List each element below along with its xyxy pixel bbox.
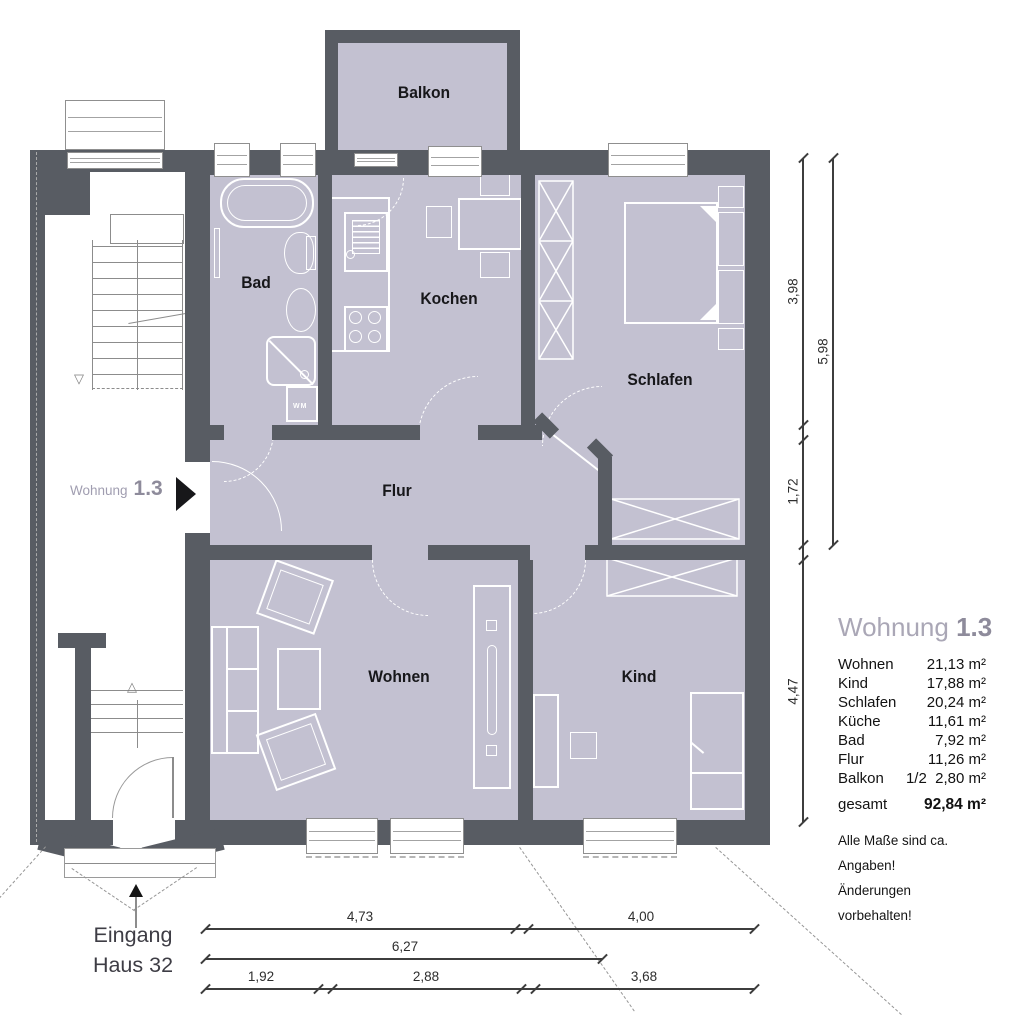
- shelf: [718, 328, 744, 350]
- dimension-label: 4,00: [611, 909, 671, 924]
- legend-title-number: 1.3: [956, 612, 992, 642]
- stair-tread: [92, 326, 183, 327]
- wall-segment: [30, 150, 45, 845]
- legend-row-label: Bad: [838, 731, 865, 750]
- dimension-label: 4,47: [786, 670, 801, 714]
- wall-segment: [318, 175, 332, 425]
- legend-row-value: 17,88 m²: [927, 674, 986, 693]
- dimension-label: 1,72: [786, 470, 801, 514]
- desk: [533, 694, 559, 788]
- bed-divider: [692, 772, 742, 774]
- dimension-line: [205, 928, 754, 930]
- stairs-up-arrow-icon: △: [127, 679, 137, 695]
- wall-segment: [745, 150, 770, 845]
- burner: [349, 311, 362, 324]
- legend-row-label: Balkon: [838, 769, 884, 788]
- legend-total-row: gesamt 92,84 m²: [838, 796, 986, 814]
- legend-title-light: Wohnung: [838, 612, 949, 642]
- sink: [286, 288, 316, 332]
- stair-tread: [92, 278, 183, 279]
- legend-row-label: Schlafen: [838, 693, 896, 712]
- wall-segment: [612, 545, 745, 560]
- legend-row-label: Küche: [838, 712, 881, 731]
- kitchen-sink-knob: [346, 250, 355, 259]
- nightstand: [718, 212, 744, 266]
- stairs-divider: [137, 700, 138, 748]
- legend-note: Alle Maße sind ca. Angaben!: [838, 828, 986, 878]
- dimension-label: 4,73: [330, 909, 390, 924]
- building-entrance-line1: Eingang: [66, 920, 200, 950]
- wall-segment: [185, 820, 770, 845]
- floor-plan-page: ▽ △ WM: [0, 0, 1024, 1024]
- stair-tread: [92, 310, 183, 311]
- wall-unit-box: [486, 620, 497, 631]
- stairs-break-line: [92, 388, 183, 389]
- sofa: [211, 626, 259, 754]
- dimension-line: [205, 988, 754, 990]
- apartment-tag-light: Wohnung: [70, 483, 128, 498]
- dimension-label: 6,27: [375, 939, 435, 954]
- legend-row: Kind 17,88 m²: [838, 674, 986, 693]
- stair-tread: [91, 690, 183, 691]
- armchair-seat: [266, 569, 324, 624]
- legend-row: Flur 11,26 m²: [838, 750, 986, 769]
- sofa-back-line: [226, 628, 228, 752]
- wall-segment: [598, 457, 612, 560]
- wall-unit-panel: [487, 645, 497, 735]
- wall-segment: [210, 425, 224, 440]
- wall-segment: [58, 633, 106, 648]
- room-label-kind: Kind: [622, 667, 657, 687]
- legend-title: Wohnung 1.3: [838, 612, 986, 643]
- entrance-direction-arrow-icon: [129, 884, 143, 897]
- single-bed: [690, 692, 744, 810]
- legend-row: Wohnen 21,13 m²: [838, 655, 986, 674]
- legend-total-value: 92,84 m²: [924, 796, 986, 814]
- window-sill: [583, 856, 677, 858]
- burner: [368, 330, 381, 343]
- washing-machine-label: WM: [293, 403, 307, 410]
- legend-row-value: 11,61 m²: [928, 712, 986, 731]
- building-door-leaf: [172, 757, 174, 818]
- wall-segment: [521, 175, 535, 425]
- window-sill: [390, 856, 464, 858]
- burner: [368, 311, 381, 324]
- window: [306, 818, 378, 854]
- wall-segment: [185, 533, 210, 845]
- wall-segment: [272, 425, 420, 440]
- dining-table: [458, 198, 522, 250]
- pillow: [700, 206, 716, 222]
- legend-row: Schlafen 20,24 m²: [838, 693, 986, 712]
- sofa-cushion-line: [228, 668, 257, 670]
- legend-row: Balkon 1/2 2,80 m²: [838, 769, 986, 788]
- wall-segment: [585, 545, 598, 560]
- stair-tread: [92, 262, 183, 263]
- dimension-label: 1,92: [231, 969, 291, 984]
- room-label-kochen: Kochen: [420, 289, 477, 309]
- legend-row-label: Kind: [838, 674, 868, 693]
- stair-tread: [92, 294, 183, 295]
- bathtub-inner: [227, 185, 307, 221]
- towel-rail: [214, 228, 220, 278]
- dimension-label: 3,98: [786, 270, 801, 314]
- legend-note: Änderungen vorbehalten!: [838, 878, 986, 928]
- room-label-flur: Flur: [382, 481, 412, 501]
- room-label-bad: Bad: [241, 273, 271, 293]
- wall-segment: [428, 545, 530, 560]
- coffee-table: [277, 648, 321, 710]
- window: [428, 146, 482, 177]
- window-sill: [306, 856, 378, 858]
- dimension-label: 2,88: [396, 969, 456, 984]
- legend-total-label: gesamt: [838, 796, 887, 814]
- pillow: [700, 304, 716, 320]
- apartment-tag: Wohnung 1.3: [70, 477, 163, 501]
- window: [214, 143, 250, 177]
- window: [280, 143, 316, 177]
- sofa-cushion-line: [228, 710, 257, 712]
- kitchen-counter-edge: [388, 197, 390, 352]
- dimension-line: [205, 958, 602, 960]
- stool: [570, 732, 597, 759]
- wardrobe-crossed: [606, 557, 738, 597]
- building-entrance-line2: Haus 32: [66, 950, 200, 980]
- legend-row-value: 1/2 2,80 m²: [906, 769, 986, 788]
- wall-segment: [185, 150, 210, 462]
- wall-segment: [75, 648, 91, 820]
- window: [608, 143, 688, 177]
- dimension-label: 3,68: [614, 969, 674, 984]
- balcony-wall: [325, 30, 520, 43]
- legend-row-value: 11,26 m²: [928, 750, 986, 769]
- dimension-label: 5,98: [816, 330, 831, 374]
- apartment-entrance-arrow-icon: [176, 477, 196, 511]
- dimension-line: [802, 158, 804, 822]
- legend-row-value: 7,92 m²: [935, 731, 986, 750]
- legend-panel: Wohnung 1.3 Wohnen 21,13 m² Kind 17,88 m…: [838, 612, 986, 928]
- chair: [480, 252, 510, 278]
- armchair-seat: [266, 723, 326, 781]
- shower-drain: [300, 370, 309, 379]
- staircase-window-threshold: [67, 152, 163, 169]
- legend-row-label: Wohnen: [838, 655, 894, 674]
- legend-row: Küche 11,61 m²: [838, 712, 986, 731]
- sight-line: [0, 846, 46, 914]
- room-label-schlafen: Schlafen: [627, 370, 692, 390]
- building-entrance-label: Eingang Haus 32: [66, 920, 200, 980]
- property-line: [36, 152, 37, 842]
- wardrobe-crossed: [610, 498, 740, 540]
- legend-row-value: 21,13 m²: [927, 655, 986, 674]
- wall-unit-box: [486, 745, 497, 756]
- wardrobe-crossed: [538, 180, 574, 360]
- stair-tread: [92, 374, 183, 375]
- stairs-down-arrow-icon: ▽: [74, 371, 84, 387]
- balcony-door-threshold: [354, 153, 398, 167]
- apartment-tag-number: 1.3: [134, 477, 163, 501]
- wall-segment: [518, 560, 533, 820]
- wall-segment: [478, 425, 542, 440]
- entrance-steps: [64, 848, 216, 878]
- stair-tread: [92, 342, 183, 343]
- room-label-wohnen: Wohnen: [368, 667, 429, 687]
- staircase-window: [65, 100, 165, 150]
- nightstand: [718, 270, 744, 324]
- legend-row-label: Flur: [838, 750, 864, 769]
- legend-notes: Alle Maße sind ca. Angaben! Änderungen v…: [838, 828, 986, 928]
- stairs-landing-outline: [110, 214, 184, 244]
- legend-row-value: 20,24 m²: [927, 693, 986, 712]
- dimension-line: [832, 158, 834, 545]
- window: [390, 818, 464, 854]
- balcony-wall: [507, 30, 520, 151]
- burner: [349, 330, 362, 343]
- legend-row: Bad 7,92 m²: [838, 731, 986, 750]
- toilet-tank: [306, 236, 316, 270]
- wall-segment: [210, 545, 372, 560]
- chair: [426, 206, 452, 238]
- stair-tread: [92, 358, 183, 359]
- window: [583, 818, 677, 854]
- stair-tread: [92, 246, 183, 247]
- room-label-balkon: Balkon: [398, 83, 450, 103]
- shelf: [718, 186, 744, 208]
- balcony-wall: [325, 30, 338, 151]
- entrance-step-line: [65, 863, 215, 864]
